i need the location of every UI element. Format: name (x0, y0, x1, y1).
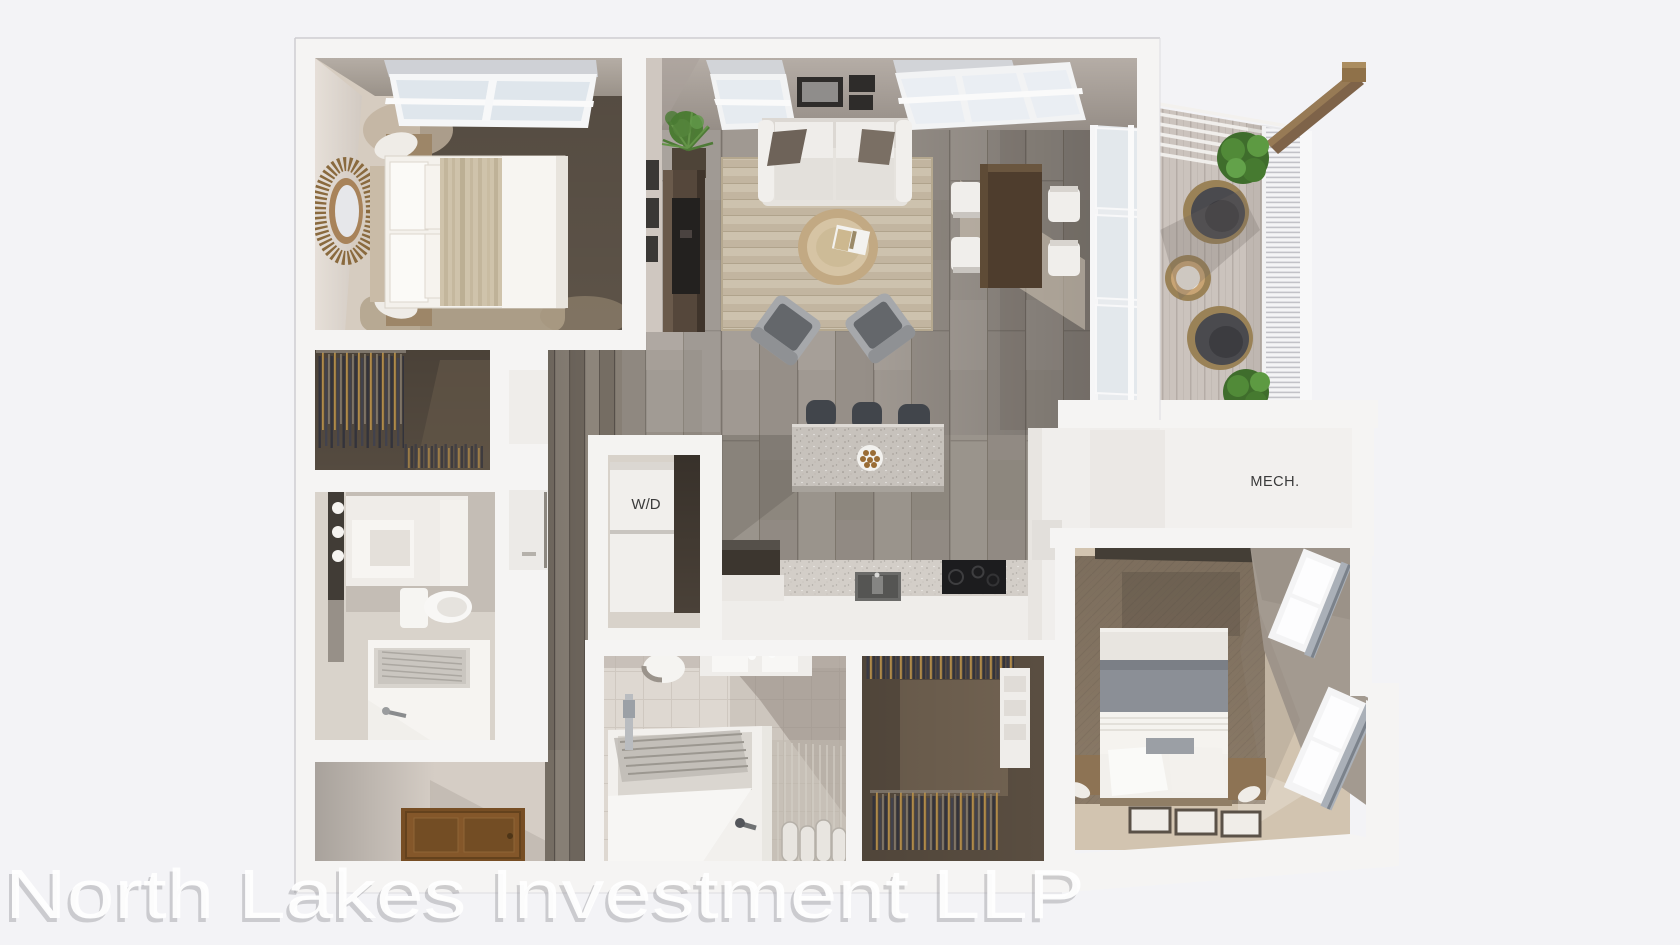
svg-text:North Lakes Investment LLP: North Lakes Investment LLP (5, 855, 1085, 933)
